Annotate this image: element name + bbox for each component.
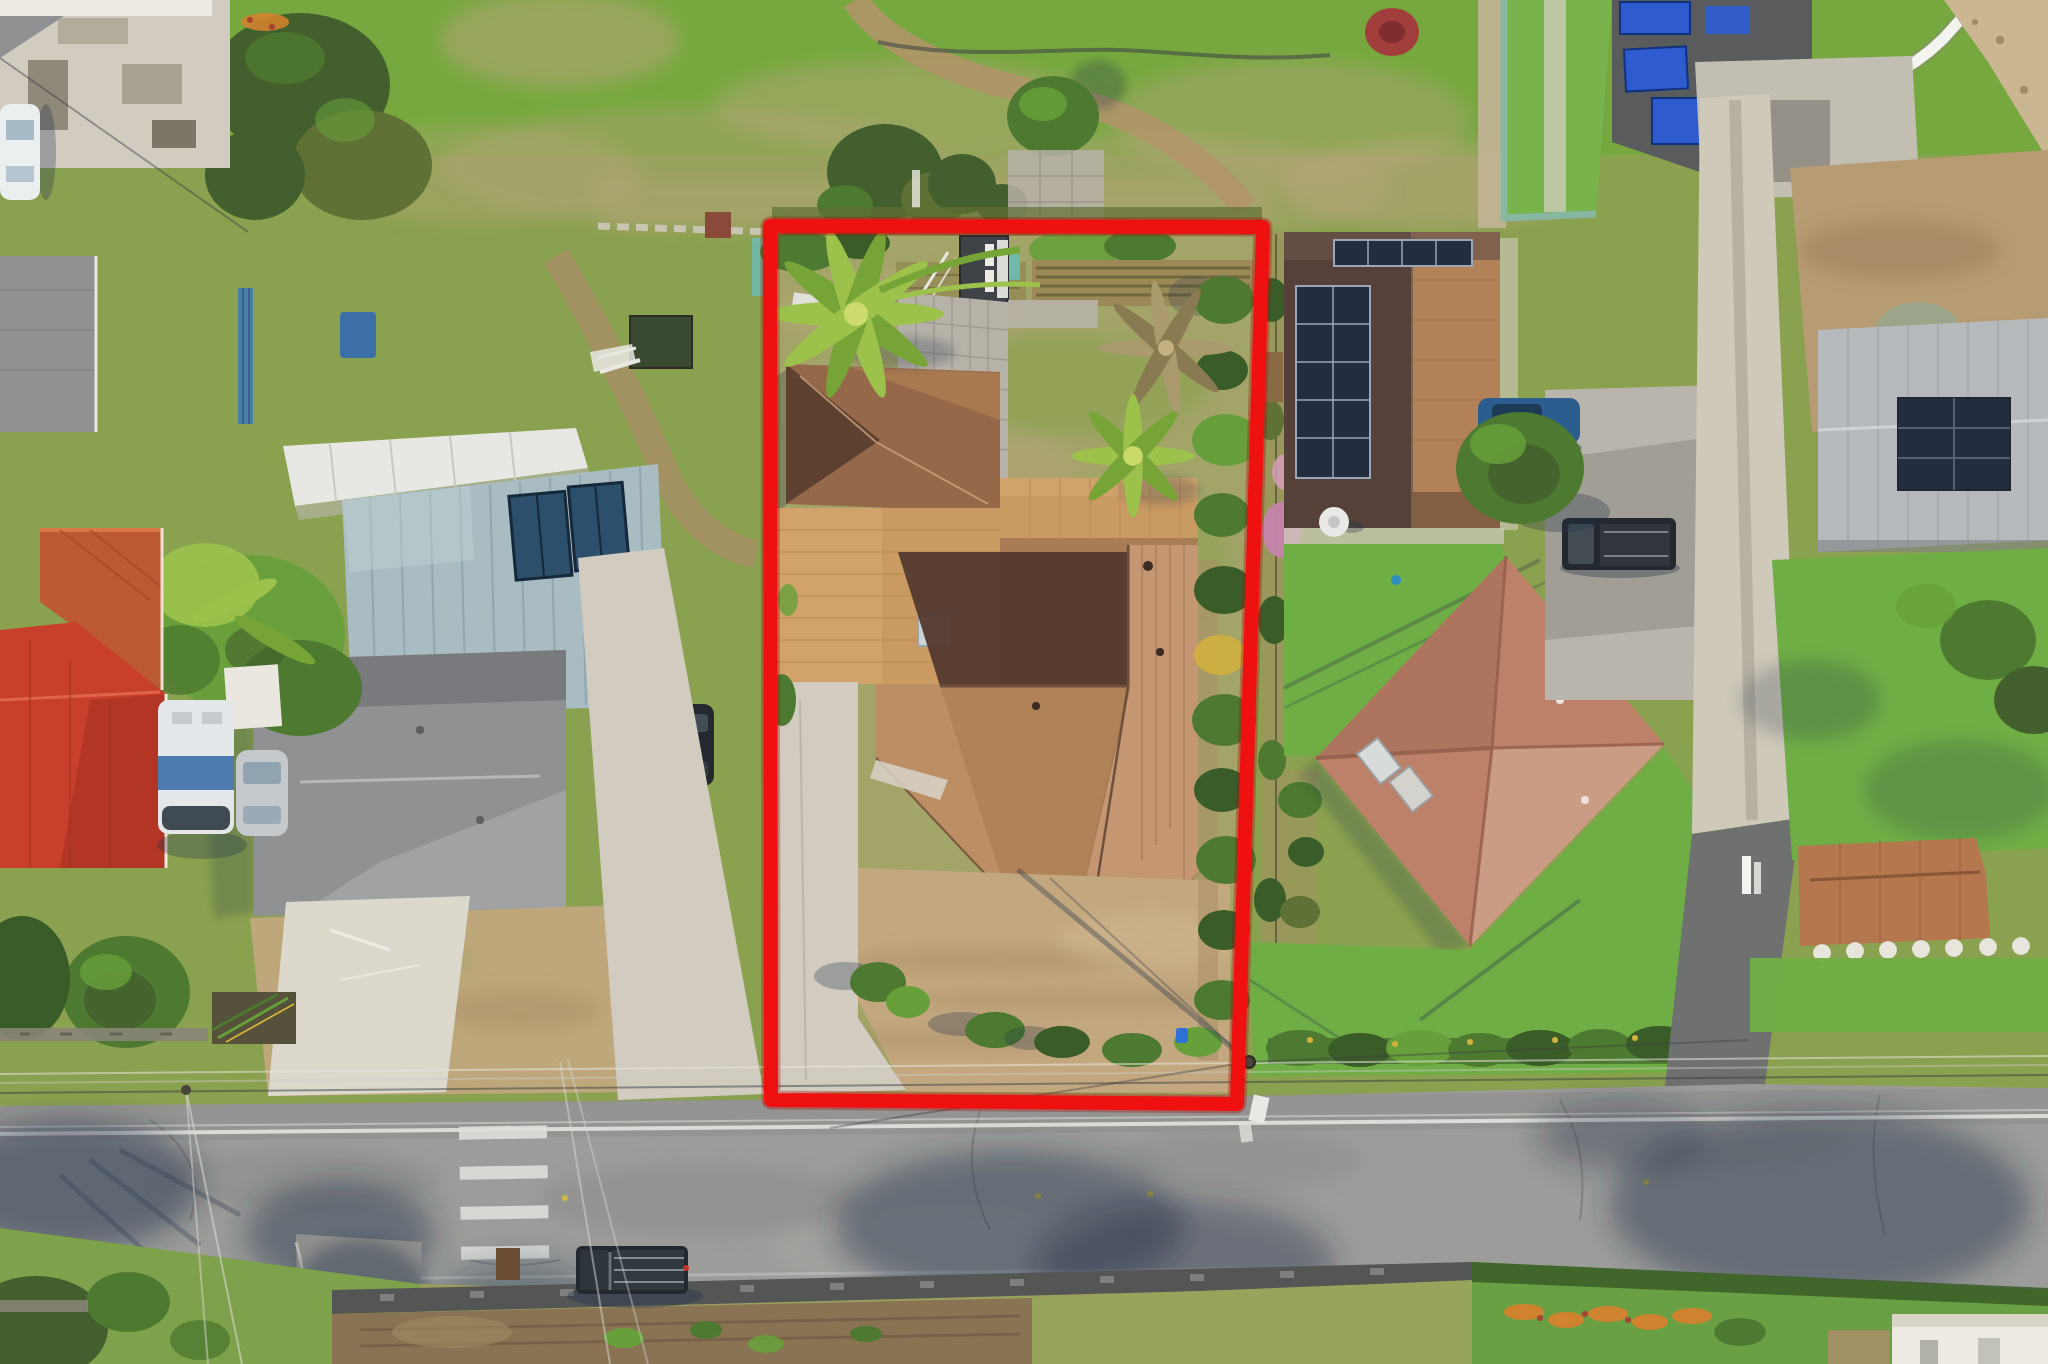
gray-shingle-corner-house	[0, 256, 96, 432]
blue-trash-can	[1176, 1028, 1188, 1043]
roof-vent	[1156, 648, 1164, 656]
parked-pickup-truck	[567, 1246, 703, 1308]
storage-shed	[960, 236, 1008, 302]
driveway-west	[268, 896, 470, 1096]
house-eave	[0, 0, 212, 16]
silver-car	[236, 750, 288, 836]
street-sign	[1239, 1123, 1253, 1142]
fence-post	[1742, 856, 1751, 894]
aerial-photo: Overhead aerial photo of a residential n…	[0, 0, 2048, 1364]
terracotta-roof-house	[1798, 838, 1990, 946]
blue-fence	[238, 288, 253, 424]
pergola	[1828, 1330, 1890, 1364]
aerial-photo-canvas: Overhead aerial photo of a residential n…	[0, 0, 2048, 1364]
white-gate-post	[912, 170, 920, 208]
rv-trailer	[157, 700, 247, 859]
blue-dumpster	[340, 312, 376, 358]
small-brown-shed	[496, 1248, 520, 1280]
rock-wall	[0, 1028, 208, 1041]
shed-door	[985, 270, 994, 292]
gray-metal-roof-house	[1818, 318, 2048, 552]
white-car	[0, 104, 56, 200]
solar-panel	[1624, 46, 1688, 91]
subject-property	[760, 207, 1263, 1104]
utility-pole-left	[181, 1085, 191, 1095]
garden-bed-rows	[212, 992, 296, 1044]
roof-vent	[1032, 702, 1040, 710]
roof-vent	[1143, 561, 1153, 571]
solar-panel	[1620, 2, 1690, 34]
paver-walkway	[1008, 300, 1098, 328]
teal-edged-lawn	[1504, 0, 1612, 220]
concrete-walk	[1544, 0, 1566, 212]
solar-panel-array	[1334, 240, 1472, 266]
garden-shed-box	[705, 212, 731, 238]
solar-panel	[1705, 6, 1749, 34]
white-building-corner	[1892, 1314, 2048, 1364]
